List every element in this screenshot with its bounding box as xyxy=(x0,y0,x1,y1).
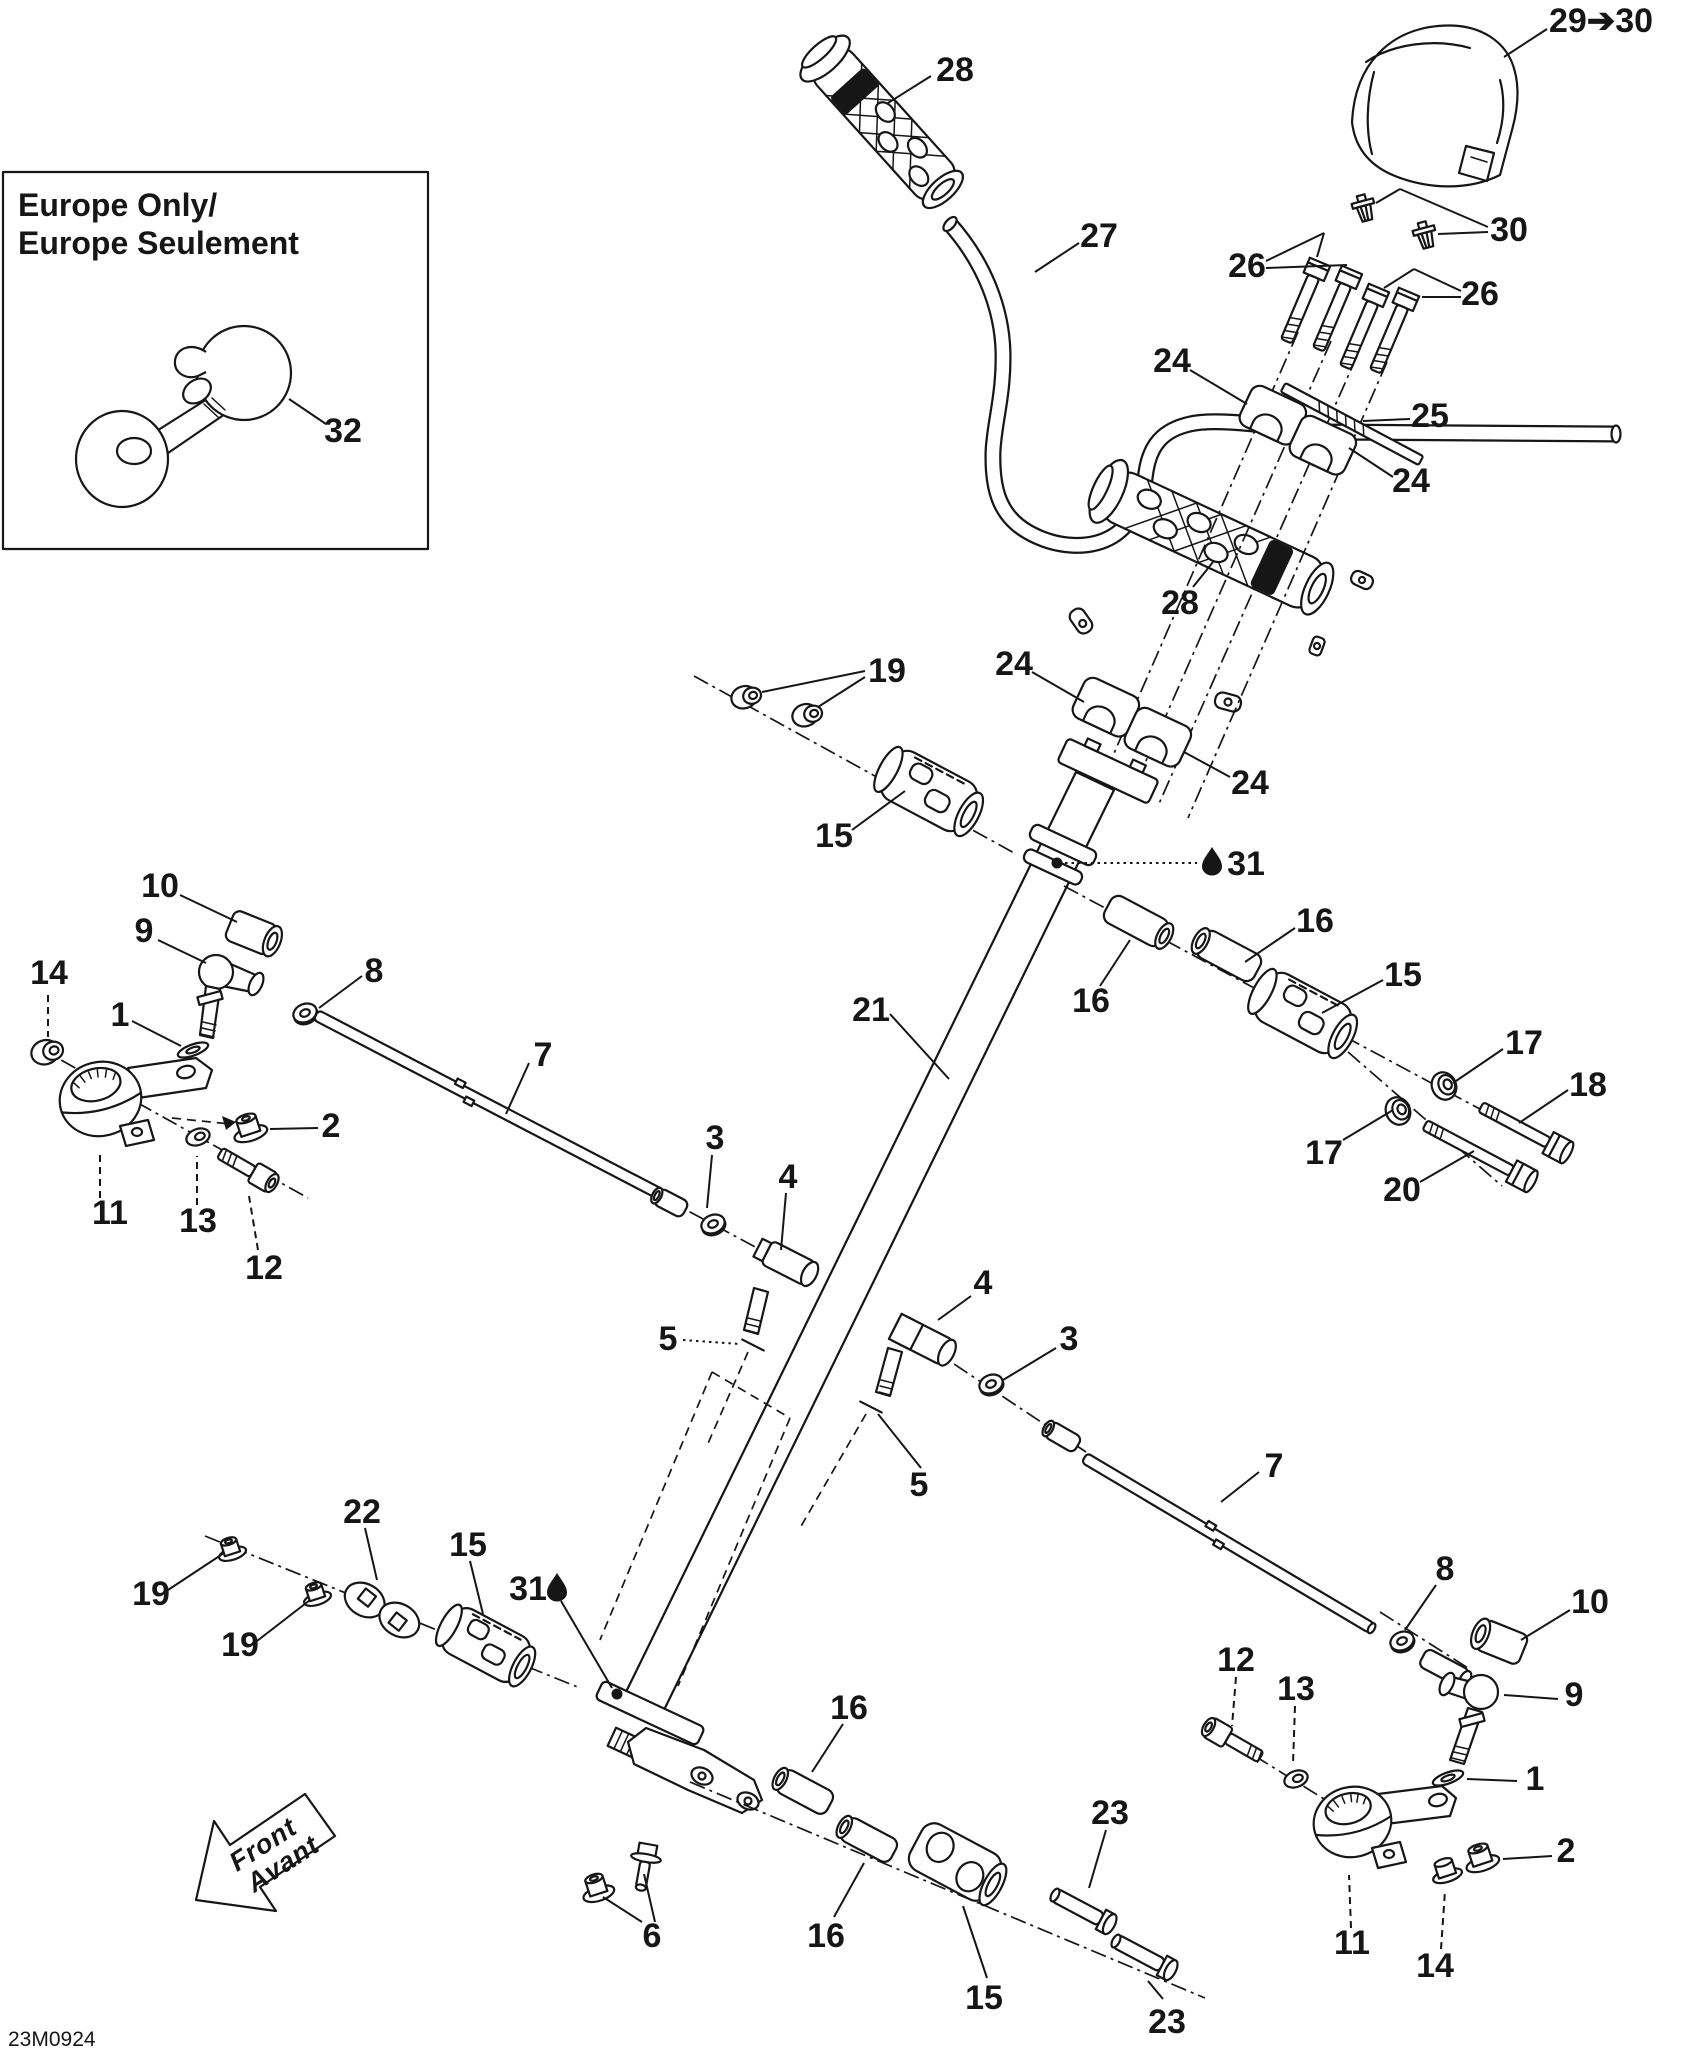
callout-2: 2 xyxy=(322,1107,341,1145)
callout-9: 9 xyxy=(135,912,154,950)
leader-line-7 xyxy=(506,1063,529,1114)
grommet xyxy=(789,700,824,730)
flange-nut xyxy=(1461,1839,1502,1875)
callout-16: 16 xyxy=(807,1917,845,1955)
lower-left-linkage xyxy=(205,1534,580,1691)
callout-15: 15 xyxy=(815,817,853,855)
callout-13: 13 xyxy=(179,1202,217,1240)
callout-17: 17 xyxy=(1505,1024,1543,1062)
left-tie-rod xyxy=(312,1007,822,1448)
leader-line-29➔30 xyxy=(1504,29,1547,57)
rod-end-cap xyxy=(224,909,286,959)
leader-line-31 xyxy=(561,1601,612,1688)
callout-6: 6 xyxy=(643,1917,662,1955)
leader-line-3 xyxy=(1003,1348,1056,1380)
parts-diagram-page: Europe Only/ Europe Seulement xyxy=(0,0,1700,2050)
callout-18: 18 xyxy=(1569,1066,1607,1104)
callout-7: 7 xyxy=(534,1036,553,1074)
circlip xyxy=(742,1340,763,1351)
callout-28: 28 xyxy=(936,51,974,89)
spacer-sleeve xyxy=(1101,893,1178,953)
callout-31: 31 xyxy=(1227,845,1265,883)
callout-12: 12 xyxy=(245,1249,283,1287)
leader-line-23 xyxy=(1089,1830,1106,1888)
leader-line-30 xyxy=(1438,232,1488,234)
callout-24: 24 xyxy=(1231,764,1269,802)
pin xyxy=(1108,1930,1181,1983)
leader-line-15 xyxy=(852,791,905,830)
tie-rod xyxy=(1080,1450,1379,1638)
leader-line-8 xyxy=(319,976,362,1008)
sheet-code: 23M0924 xyxy=(8,2028,96,2050)
leader-line-10 xyxy=(180,895,237,922)
leader-line-2 xyxy=(270,1128,318,1129)
leader-line-10 xyxy=(1521,1610,1570,1640)
bolt xyxy=(1199,1715,1266,1767)
bar-end-right xyxy=(1612,426,1621,443)
callout-23: 23 xyxy=(1091,1794,1129,1832)
flange-nut xyxy=(229,1109,270,1145)
callout-24: 24 xyxy=(995,645,1033,683)
callout-26: 26 xyxy=(1461,275,1499,313)
leader-line-27 xyxy=(1035,243,1079,272)
callout-28: 28 xyxy=(1161,584,1199,622)
callout-10: 10 xyxy=(141,867,179,905)
callout-5: 5 xyxy=(910,1466,929,1504)
leader-line-17 xyxy=(1453,1049,1503,1083)
washer xyxy=(184,1125,212,1148)
lube-point-dot xyxy=(1052,858,1063,869)
callout-17: 17 xyxy=(1305,1134,1343,1172)
callout-12: 12 xyxy=(1217,1641,1255,1679)
rod-end-tube xyxy=(649,1186,690,1219)
callout-22: 22 xyxy=(343,1493,381,1531)
circlip xyxy=(860,1402,881,1413)
bolt xyxy=(215,1143,282,1195)
callout-15: 15 xyxy=(449,1526,487,1564)
grommet xyxy=(728,682,763,712)
callout-24: 24 xyxy=(1153,342,1191,380)
leader-line-8 xyxy=(1405,1585,1436,1630)
callout-16: 16 xyxy=(830,1689,868,1727)
callout-8: 8 xyxy=(1436,1550,1455,1588)
washer xyxy=(1427,1068,1460,1103)
callout-4: 4 xyxy=(974,1264,993,1302)
leader-line-24 xyxy=(1349,448,1393,477)
callout-19: 19 xyxy=(221,1626,259,1664)
leader-line-15 xyxy=(470,1561,483,1614)
left-steering-arm-cluster xyxy=(28,909,320,1198)
leader-line-12 xyxy=(1232,1677,1236,1726)
pin xyxy=(1047,1884,1120,1937)
leader-line-26 xyxy=(1266,233,1324,261)
flange-lock-nut xyxy=(214,1534,248,1564)
leader-line-6 xyxy=(603,1897,642,1922)
leader-line-13 xyxy=(1293,1706,1295,1764)
grommet xyxy=(28,1035,66,1068)
inset-title-line2: Europe Seulement xyxy=(18,225,299,261)
leader-line-17 xyxy=(1343,1110,1393,1140)
handlebar-cover xyxy=(1352,25,1518,186)
leader-line-4 xyxy=(781,1193,786,1250)
callout-3: 3 xyxy=(1060,1320,1079,1358)
callout-19: 19 xyxy=(868,652,906,690)
bar-tab xyxy=(1349,569,1375,591)
steering-parts-diagram: Europe Only/ Europe Seulement xyxy=(0,0,1700,2050)
leader-line-30 xyxy=(1376,189,1400,203)
leader-line-16 xyxy=(812,1724,843,1772)
inset-title-line1: Europe Only/ xyxy=(18,187,217,223)
rod-end-cap xyxy=(1467,1616,1529,1666)
leader-line-2 xyxy=(1503,1856,1552,1859)
spacer-sleeve xyxy=(769,1765,836,1817)
ball-joint xyxy=(1436,1671,1498,1764)
leader-line-5 xyxy=(878,1414,921,1468)
spacer-sleeve xyxy=(833,1813,900,1865)
leader-line-24 xyxy=(1032,672,1084,702)
coupler xyxy=(1242,963,1365,1063)
callout-7: 7 xyxy=(1265,1447,1284,1485)
bar-tab xyxy=(1067,606,1095,636)
callout-1: 1 xyxy=(111,996,130,1034)
cover-rivet xyxy=(1411,219,1439,250)
callout-5: 5 xyxy=(659,1320,678,1358)
callout-9: 9 xyxy=(1565,1676,1584,1714)
callout-15: 15 xyxy=(1384,956,1422,994)
callout-10: 10 xyxy=(1571,1583,1609,1621)
ball-joint xyxy=(197,955,266,1038)
callout-29➔30: 29➔30 xyxy=(1549,2,1653,40)
callout-14: 14 xyxy=(1416,1947,1454,1985)
leader-line-19 xyxy=(257,1600,310,1641)
spacer-sleeve xyxy=(1188,924,1265,984)
callout-23: 23 xyxy=(1148,2003,1186,2041)
bar-tab xyxy=(1308,635,1325,656)
leader-line-5 xyxy=(683,1340,740,1344)
leader-line-28 xyxy=(888,76,931,103)
callout-16: 16 xyxy=(1296,902,1334,940)
leader-line-6 xyxy=(644,1874,655,1922)
washer-flat xyxy=(1431,1767,1465,1788)
callout-27: 27 xyxy=(1080,217,1118,255)
link-plate xyxy=(338,1576,425,1645)
leader-line-25 xyxy=(1363,419,1410,421)
steering-column xyxy=(595,675,1194,1813)
callout-14: 14 xyxy=(30,954,68,992)
callout-26: 26 xyxy=(1228,247,1266,285)
rod-end-tube xyxy=(1040,1418,1082,1453)
callout-32: 32 xyxy=(324,412,362,450)
steering-arm xyxy=(52,1053,212,1146)
callout-13: 13 xyxy=(1277,1670,1315,1708)
callout-24: 24 xyxy=(1392,462,1430,500)
front-direction-arrow-icon: Front Avant xyxy=(196,1794,335,1911)
column-shaft xyxy=(626,772,1114,1710)
callout-20: 20 xyxy=(1383,1171,1421,1209)
leader-line-30 xyxy=(1400,189,1488,227)
leader-line-16 xyxy=(834,1863,864,1917)
right-tie-rod xyxy=(800,1314,1379,1638)
tie-rod xyxy=(312,1007,666,1203)
leader-line-12 xyxy=(249,1196,258,1250)
leader-line-19 xyxy=(168,1553,224,1590)
callout-11: 11 xyxy=(92,1194,128,1232)
handlebar xyxy=(941,215,1621,713)
callout-3: 3 xyxy=(706,1119,725,1157)
leader-line-15 xyxy=(963,1906,987,1978)
leader-line-19 xyxy=(762,671,865,692)
callout-30: 30 xyxy=(1490,211,1528,249)
leader-line-20 xyxy=(1420,1151,1474,1182)
inset-europe-only: Europe Only/ Europe Seulement xyxy=(3,172,428,549)
coupler xyxy=(904,1818,1014,1909)
steering-arm xyxy=(1306,1779,1456,1868)
coupler xyxy=(430,1599,543,1691)
leader-line-21 xyxy=(890,1014,949,1079)
leader-line-7 xyxy=(1221,1472,1259,1502)
callout-25: 25 xyxy=(1411,397,1449,435)
washer xyxy=(1381,1093,1414,1128)
callout-21: 21 xyxy=(852,991,890,1029)
callout-11: 11 xyxy=(1334,1924,1370,1962)
flange-bolt xyxy=(625,1842,663,1893)
leader-line-26 xyxy=(1414,269,1461,291)
callout-4: 4 xyxy=(779,1158,798,1196)
oil-drop-icon xyxy=(547,1573,567,1602)
leader-line-22 xyxy=(365,1528,377,1580)
leader-line-18 xyxy=(1519,1090,1568,1123)
leader-line-16 xyxy=(1100,940,1130,986)
leader-line-1 xyxy=(132,1021,181,1046)
leader-line-1 xyxy=(1467,1779,1517,1781)
leader-line-9 xyxy=(158,940,206,963)
coupler xyxy=(868,741,991,841)
callout-16: 16 xyxy=(1072,982,1110,1020)
leader-line-9 xyxy=(1504,1695,1558,1699)
lock-nut xyxy=(1428,1854,1464,1886)
callout-15: 15 xyxy=(965,1979,1003,2017)
lube-point-dot xyxy=(612,1689,623,1700)
oil-drop-icon xyxy=(1202,847,1222,876)
callout-31: 31 xyxy=(509,1570,547,1608)
callout-1: 1 xyxy=(1526,1760,1545,1798)
hex-nut xyxy=(699,1211,729,1239)
leader-line-4 xyxy=(938,1296,971,1320)
leader-line-3 xyxy=(707,1155,712,1208)
callout-2: 2 xyxy=(1557,1832,1576,1870)
cover-rivet xyxy=(1350,192,1378,223)
leader-line-24 xyxy=(1190,370,1247,404)
leader-line-26 xyxy=(1384,269,1414,288)
leader-line-19 xyxy=(818,677,865,707)
leader-line-11 xyxy=(1349,1875,1351,1928)
hex-nut xyxy=(977,1371,1007,1399)
callout-19: 19 xyxy=(132,1575,170,1613)
leader-line-16 xyxy=(1245,928,1295,962)
leader-line-23 xyxy=(1148,1981,1163,1999)
flange-nut xyxy=(577,1870,616,1906)
callout-8: 8 xyxy=(365,952,384,990)
leader-line-14 xyxy=(1441,1891,1445,1949)
